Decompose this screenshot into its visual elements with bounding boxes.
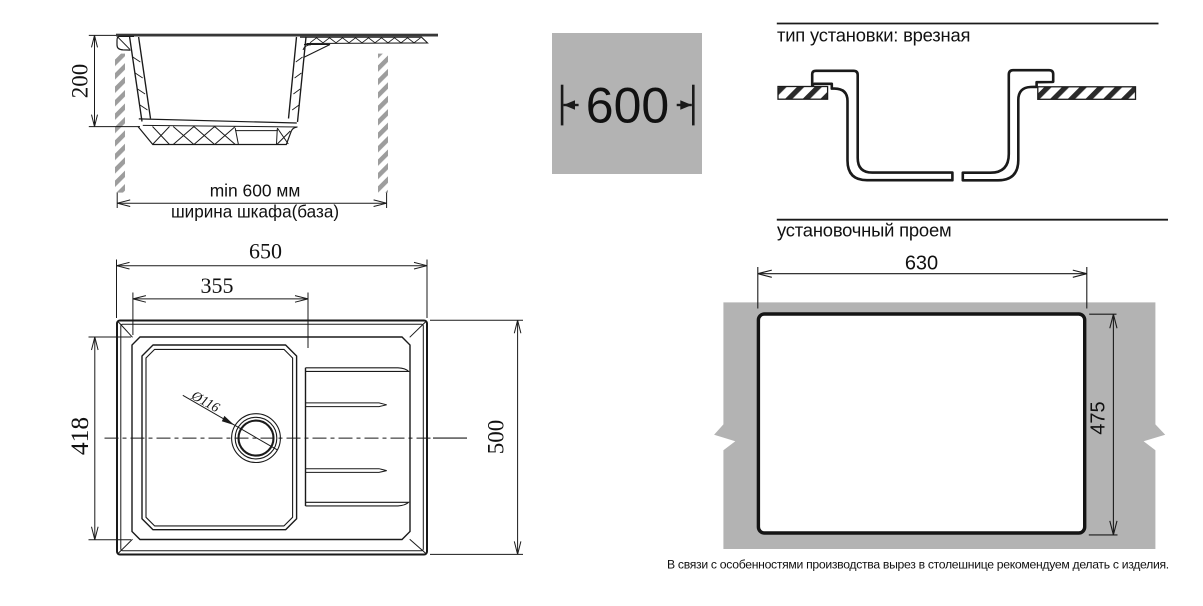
svg-text:475: 475 [1088,401,1110,434]
svg-text:355: 355 [201,273,234,298]
svg-text:200: 200 [68,64,93,99]
svg-text:418: 418 [65,417,94,455]
svg-text:630: 630 [905,253,938,275]
svg-text:ширина шкафа(база): ширина шкафа(база) [171,203,339,222]
svg-text:500: 500 [484,420,509,455]
svg-text:тип установки: врезная: тип установки: врезная [777,25,970,46]
svg-text:650: 650 [249,239,282,264]
svg-text:установочный проем: установочный проем [777,220,951,241]
svg-text:600: 600 [586,78,669,134]
svg-text:min 600 мм: min 600 мм [210,181,301,201]
svg-text:В связи с особенностями произв: В связи с особенностями производства выр… [667,558,1169,572]
